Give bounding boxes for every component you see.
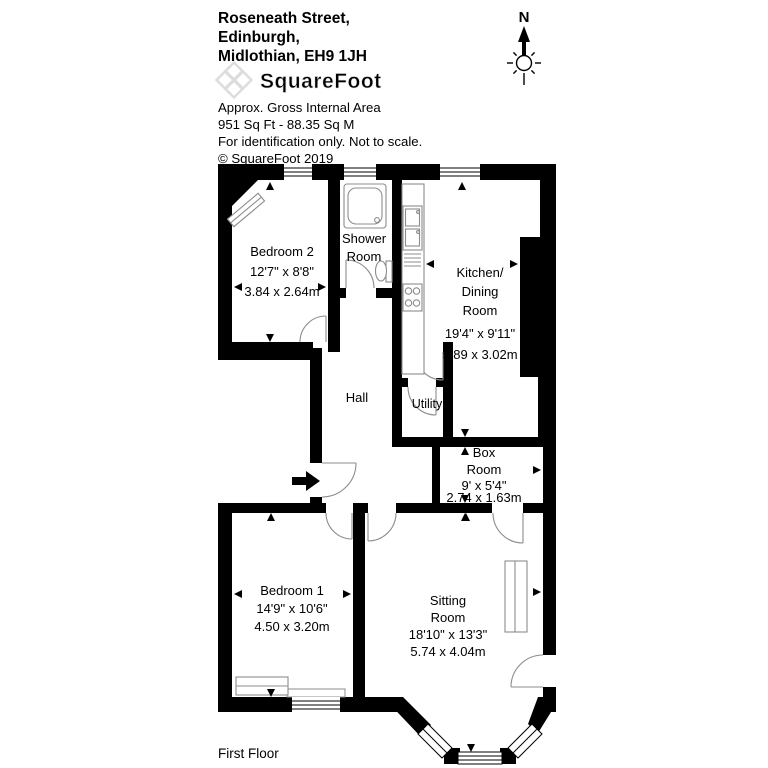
sitting-room-name-1: Sitting xyxy=(430,593,466,608)
kitchen-label: Kitchen/ Dining Room 19'4" x 9'11" 5.89 … xyxy=(442,265,517,362)
sitting-room-name-2: Room xyxy=(431,610,466,625)
floorplan-page: Roseneath Street, Edinburgh, Midlothian,… xyxy=(0,0,768,768)
kitchen-name-1: Kitchen/ xyxy=(457,265,504,280)
hob-icon xyxy=(403,284,422,311)
bedroom1-label: Bedroom 1 14'9" x 10'6" 4.50 x 3.20m xyxy=(254,583,329,634)
sitting-room-label: Sitting Room 18'10" x 13'3" 5.74 x 4.04m xyxy=(409,593,488,659)
kitchen-name-3: Room xyxy=(463,303,498,318)
box-room-dims-metric: 2.74 x 1.63m xyxy=(446,490,521,505)
bedroom2-name: Bedroom 2 xyxy=(250,244,314,259)
shower-room-name-2: Room xyxy=(347,249,382,264)
sitting-room-se-door xyxy=(511,655,543,687)
sitting-room-nw-door xyxy=(368,513,396,541)
shower-window xyxy=(344,164,376,180)
bedroom1-radiator-icon xyxy=(236,677,288,695)
kitchen-dims-imperial: 19'4" x 9'11" xyxy=(445,326,516,341)
floor-label: First Floor xyxy=(218,746,279,761)
sitting-room-dims-metric: 5.74 x 4.04m xyxy=(410,644,485,659)
bedroom1-door xyxy=(326,513,352,539)
bay-window xyxy=(418,724,542,764)
box-room-name-2: Room xyxy=(467,462,502,477)
squarefoot-logo-icon xyxy=(217,63,252,98)
area-info: Approx. Gross Internal Area 951 Sq Ft - … xyxy=(218,100,422,166)
compass-north-label: N xyxy=(519,9,530,26)
bedroom2-window xyxy=(284,164,312,180)
bedroom1-dims-imperial: 14'9" x 10'6" xyxy=(256,601,328,616)
bedroom2-label: Bedroom 2 12'7" x 8'8" 3.84 x 2.64m xyxy=(244,244,319,299)
area-info-line2: 951 Sq Ft - 88.35 Sq M xyxy=(218,117,354,132)
box-room-door xyxy=(493,513,523,543)
area-info-line1: Approx. Gross Internal Area xyxy=(218,100,381,115)
sitting-room-chimney-icon xyxy=(505,561,527,632)
shower-door xyxy=(346,260,374,288)
shower-room-name-1: Shower xyxy=(342,231,387,246)
bedroom2-dims-metric: 3.84 x 2.64m xyxy=(244,284,319,299)
toilet-icon xyxy=(376,261,393,282)
sitting-room-dims-imperial: 18'10" x 13'3" xyxy=(409,627,488,642)
hall-label: Hall xyxy=(346,390,369,405)
kitchen-name-2: Dining xyxy=(462,284,499,299)
address-line-2: Edinburgh, xyxy=(218,29,300,46)
squarefoot-logo: SquareFoot xyxy=(217,63,382,98)
entry-door xyxy=(322,463,356,497)
kitchen-dims-metric: 5.89 x 3.02m xyxy=(442,347,517,362)
bedroom2-door xyxy=(300,316,326,342)
bedroom1-window xyxy=(287,689,345,712)
disclaimer-text: For identification only. Not to scale. xyxy=(218,134,422,149)
copyright-text: © SquareFoot 2019 xyxy=(218,151,333,166)
floor-plan: Roseneath Street, Edinburgh, Midlothian,… xyxy=(0,0,768,768)
bedroom2-dims-imperial: 12'7" x 8'8" xyxy=(250,264,314,279)
box-room-name-1: Box xyxy=(473,445,496,460)
shower-tray-icon xyxy=(344,184,386,228)
kitchen-window xyxy=(440,164,480,180)
bedroom1-name: Bedroom 1 xyxy=(260,583,324,598)
shower-room-label: Shower Room xyxy=(342,231,387,264)
utility-label: Utility xyxy=(412,397,443,411)
address-line-1: Roseneath Street, xyxy=(218,10,350,27)
compass-icon: N xyxy=(507,9,541,85)
address-line-3: Midlothian, EH9 1JH xyxy=(218,48,367,65)
entry-arrow-icon xyxy=(292,471,320,491)
box-room-label: Box Room 9' x 5'4" 2.74 x 1.63m xyxy=(446,445,521,505)
squarefoot-logo-text: SquareFoot xyxy=(260,70,382,93)
property-address: Roseneath Street, Edinburgh, Midlothian,… xyxy=(218,10,367,65)
bedroom1-dims-metric: 4.50 x 3.20m xyxy=(254,619,329,634)
